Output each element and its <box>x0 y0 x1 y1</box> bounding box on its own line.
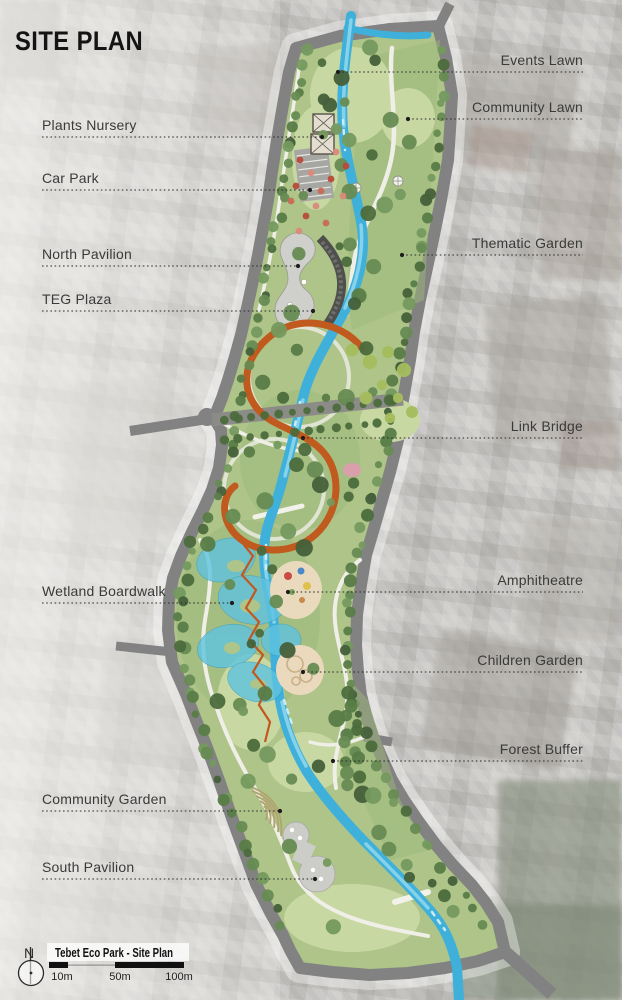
amphitheatre-area <box>270 561 322 619</box>
compass-north-label: N <box>24 945 34 961</box>
site-plan-map: N <box>0 0 622 1000</box>
callout-leader-dot <box>313 877 317 881</box>
callout-label-thematic-garden: Thematic Garden <box>472 235 583 251</box>
callout-leader-dot <box>311 309 315 313</box>
callout-label-plants-nursery: Plants Nursery <box>42 117 137 133</box>
callout-leader-dot <box>320 135 324 139</box>
callout-leader-dot <box>301 436 305 440</box>
callout-leader-dot <box>230 601 234 605</box>
callout-leader-dot <box>296 264 300 268</box>
callout-label-car-park: Car Park <box>42 170 99 186</box>
legend-title: Tebet Eco Park - Site Plan <box>55 945 173 960</box>
scale-bar <box>49 962 184 968</box>
callout-label-north-pavilion: North Pavilion <box>42 246 132 262</box>
callout-leader-dot <box>406 117 410 121</box>
callout-leader-dot <box>331 759 335 763</box>
callout-label-forest-buffer: Forest Buffer <box>500 741 583 757</box>
callout-label-community-garden: Community Garden <box>42 791 167 807</box>
callout-label-teg-plaza: TEG Plaza <box>42 291 112 307</box>
callout-leader-dot <box>278 809 282 813</box>
callout-leader-dot <box>336 70 340 74</box>
callout-leader-dot <box>400 253 404 257</box>
callout-leader-dot <box>308 188 312 192</box>
callout-label-amphitheatre: Amphitheatre <box>497 572 583 588</box>
compass: N <box>19 945 44 986</box>
callout-label-link-bridge: Link Bridge <box>511 418 583 434</box>
callout-leader-dot <box>286 590 290 594</box>
site-plan-page: N SITE PLAN Plants NurseryCar ParkNorth … <box>0 0 622 1000</box>
callout-label-children-garden: Children Garden <box>477 652 583 668</box>
callout-leader-dot <box>301 670 305 674</box>
scale-tick-100m: 100m <box>165 971 193 983</box>
callout-label-south-pavilion: South Pavilion <box>42 859 134 875</box>
callout-label-events-lawn: Events Lawn <box>501 52 583 68</box>
scale-tick-50m: 50m <box>109 971 130 983</box>
scale-tick-10m: 10m <box>51 971 72 983</box>
callout-label-community-lawn: Community Lawn <box>472 99 583 115</box>
page-title: SITE PLAN <box>15 26 143 57</box>
callout-label-wetland-boardwalk: Wetland Boardwalk <box>42 583 166 599</box>
